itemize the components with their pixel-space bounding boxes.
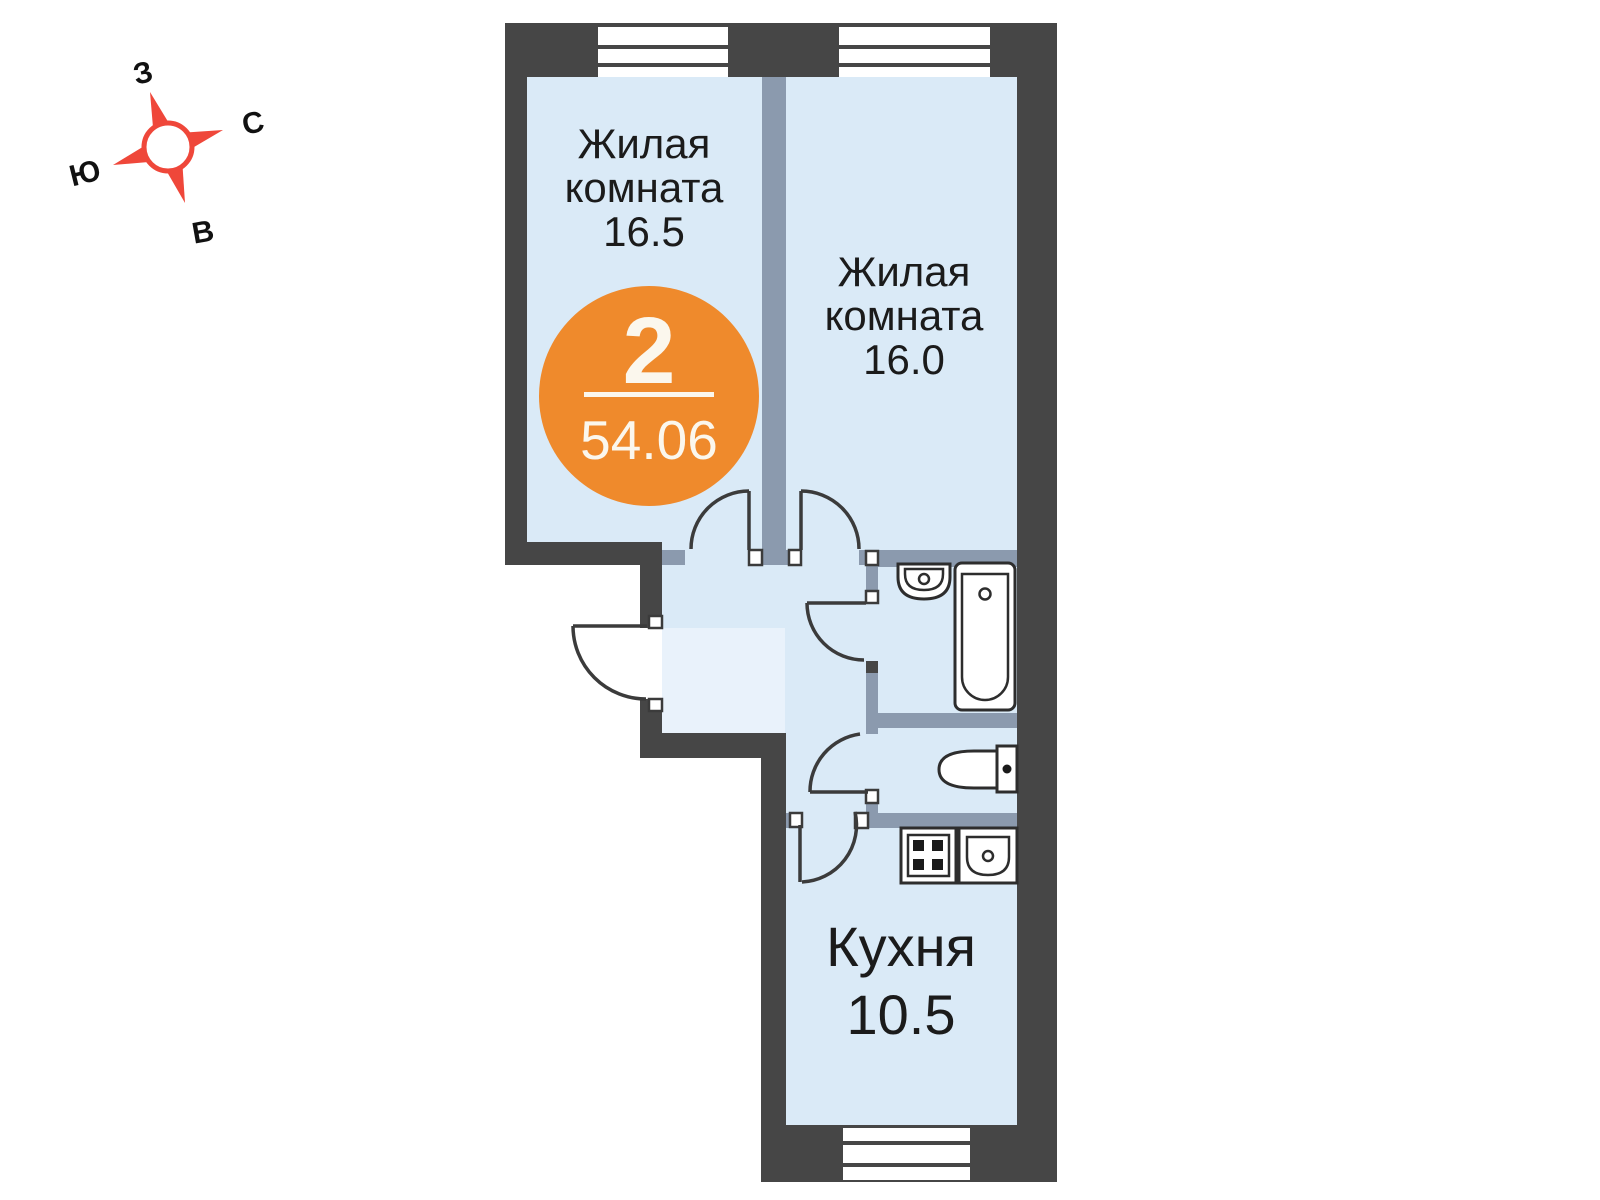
- kitchen-name: Кухня: [826, 915, 976, 978]
- jamb-bathroom-bottom: [866, 661, 878, 673]
- wall-right: [1017, 23, 1057, 1182]
- compass-south: Ю: [66, 154, 104, 194]
- toilet-icon: [939, 746, 1017, 792]
- stove-icon: [901, 828, 956, 883]
- floor-plan-drawing: Жилая комната 16.5 Жилая комната 16.0 Ку…: [0, 0, 1600, 1200]
- wall-left: [505, 23, 527, 563]
- opening-room-2: [801, 550, 859, 565]
- kitchen-area: 10.5: [847, 983, 956, 1046]
- jamb-entry-top: [649, 616, 662, 628]
- wall-room-partition: [762, 77, 786, 550]
- window-room-2: [839, 27, 990, 77]
- area-badge: 2 54.06: [539, 286, 759, 506]
- jamb-kitchen-left: [790, 813, 802, 827]
- jamb-bathroom: [866, 591, 878, 603]
- room-1-name-line2: комната: [565, 164, 724, 211]
- jamb-entry-bottom: [649, 699, 662, 711]
- kitchen-sink-icon: [959, 828, 1017, 883]
- compass-circle: [144, 123, 192, 171]
- opening-toilet: [866, 734, 878, 790]
- compass-east: В: [190, 214, 217, 250]
- window-kitchen: [843, 1128, 970, 1180]
- jamb-room2-strike: [866, 551, 878, 565]
- jamb-room1: [749, 550, 762, 565]
- badge-divider: [584, 392, 714, 397]
- floor-plan-page: Жилая комната 16.5 Жилая комната 16.0 Ку…: [0, 0, 1600, 1200]
- compass-rose-icon: З С Ю В: [66, 55, 267, 250]
- opening-room-1: [685, 550, 749, 565]
- room-1-area: 16.5: [603, 208, 685, 255]
- bathtub-icon: [955, 563, 1015, 710]
- wall-bathroom-toilet: [866, 713, 1017, 728]
- compass-north: С: [239, 105, 267, 142]
- wall-room1-bottom: [505, 542, 662, 565]
- badge-total-area: 54.06: [580, 409, 718, 471]
- room-2-name-line1: Жилая: [838, 248, 971, 295]
- compass-west: З: [130, 55, 156, 92]
- room-2-area: 16.0: [863, 336, 945, 383]
- jamb-room2-hinge: [789, 550, 801, 565]
- opening-bathroom: [866, 603, 878, 661]
- wall-corridor-left: [761, 757, 786, 1182]
- bathroom-sink-icon: [898, 564, 950, 599]
- door-entrance: [573, 626, 647, 699]
- window-room-1: [598, 27, 728, 77]
- room-1-name-line1: Жилая: [578, 120, 711, 167]
- floor-entry-vestibule: [662, 628, 785, 733]
- room-2-name-line2: комната: [825, 292, 984, 339]
- opening-kitchen: [802, 813, 855, 828]
- wall-hall-bottom: [640, 733, 786, 758]
- badge-rooms-count: 2: [623, 298, 676, 404]
